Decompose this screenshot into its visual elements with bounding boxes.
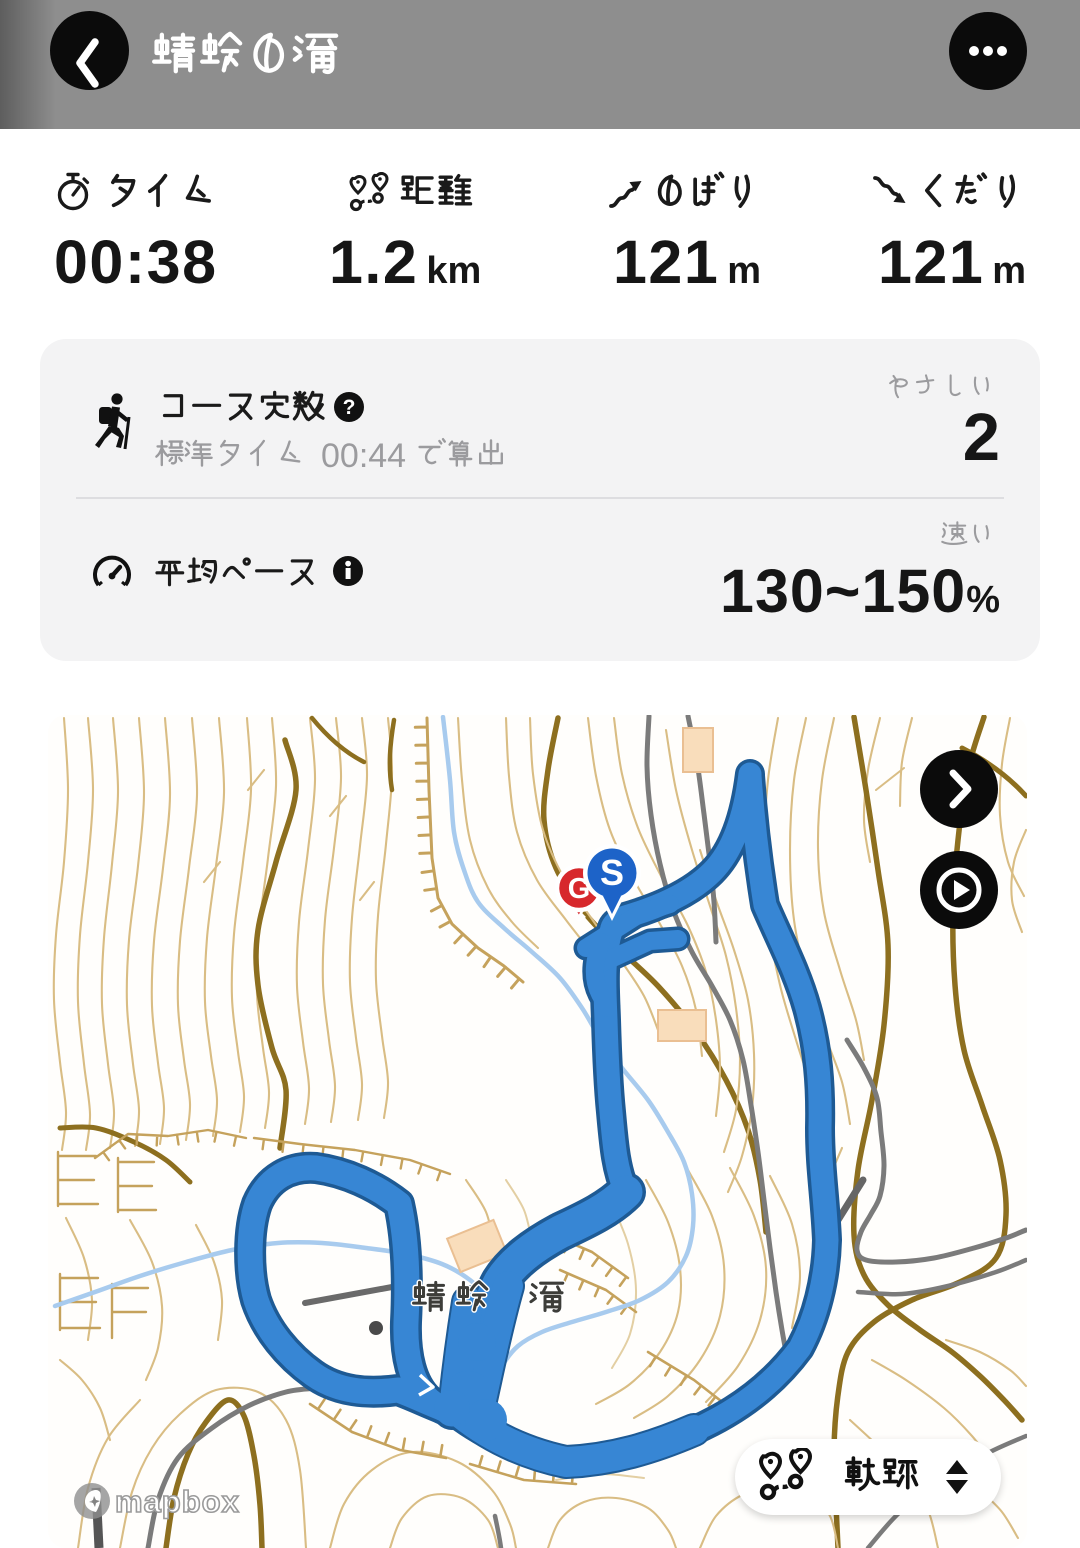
svg-text:?: ?: [343, 396, 356, 419]
svg-text:mapbox: mapbox: [115, 1484, 240, 1519]
svg-text:S: S: [600, 852, 624, 893]
